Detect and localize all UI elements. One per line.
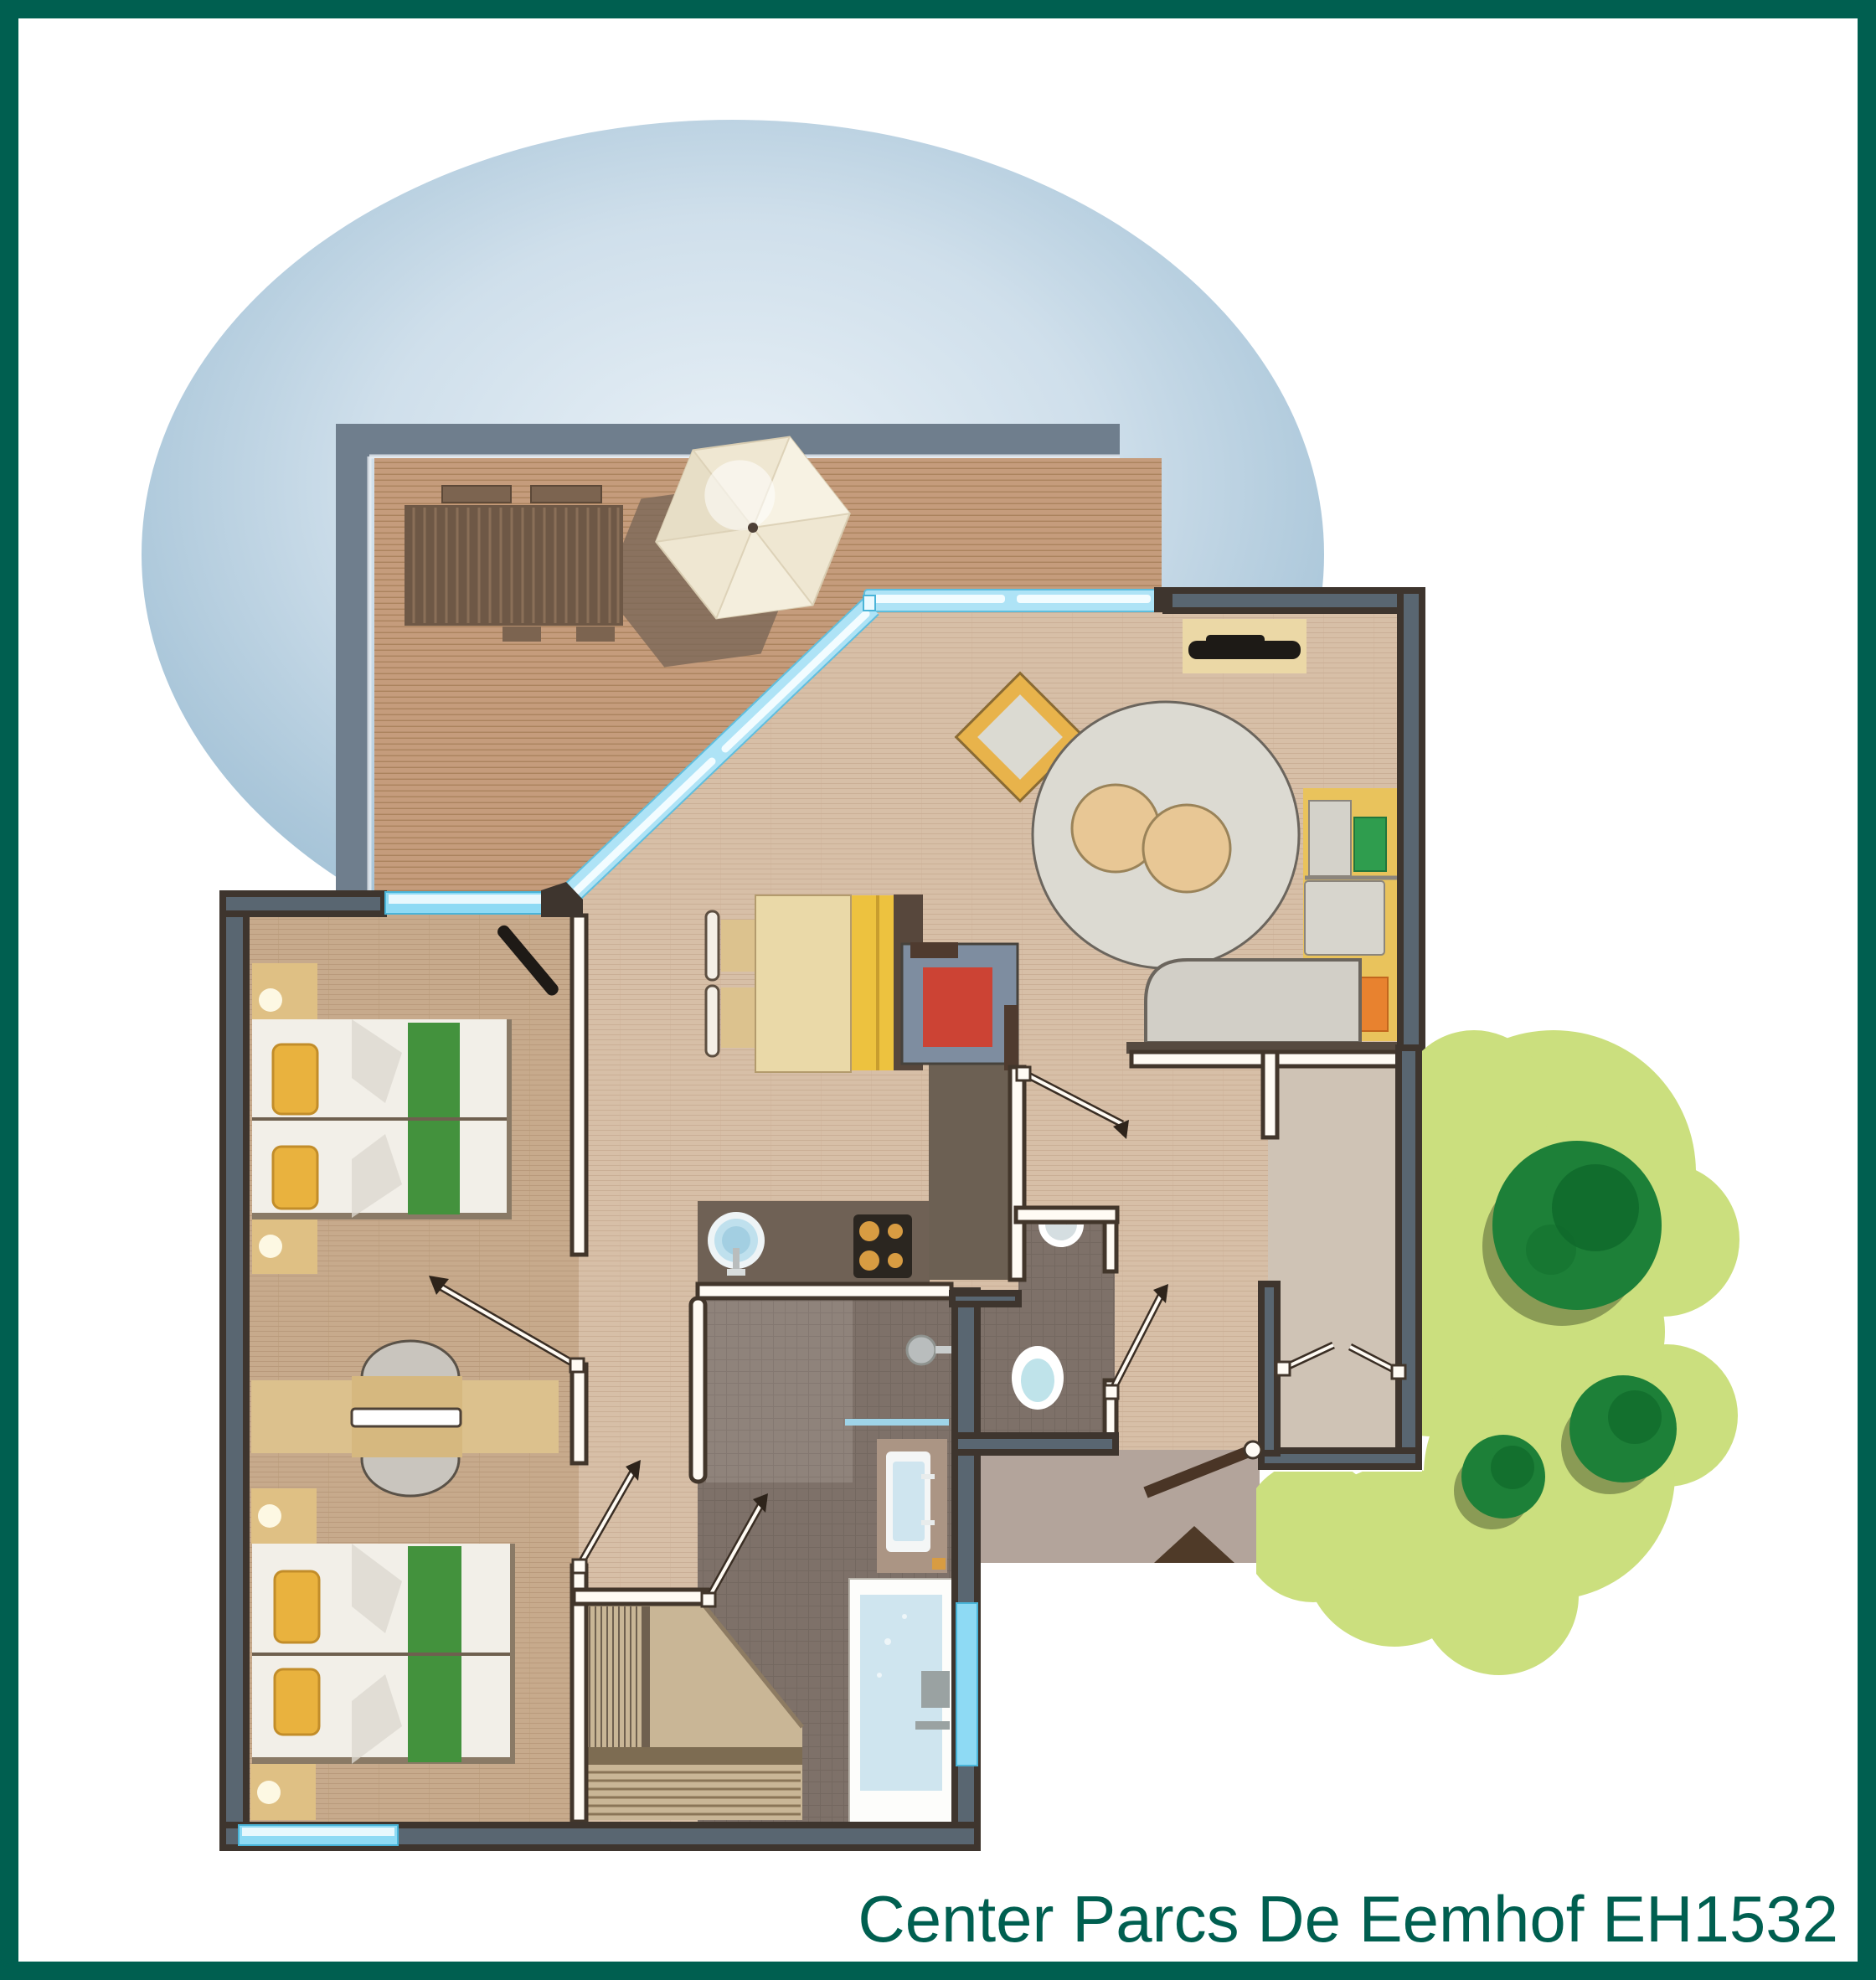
svg-text:Center Parcs De Eemhof EH1532: Center Parcs De Eemhof EH1532 xyxy=(858,1882,1838,1956)
